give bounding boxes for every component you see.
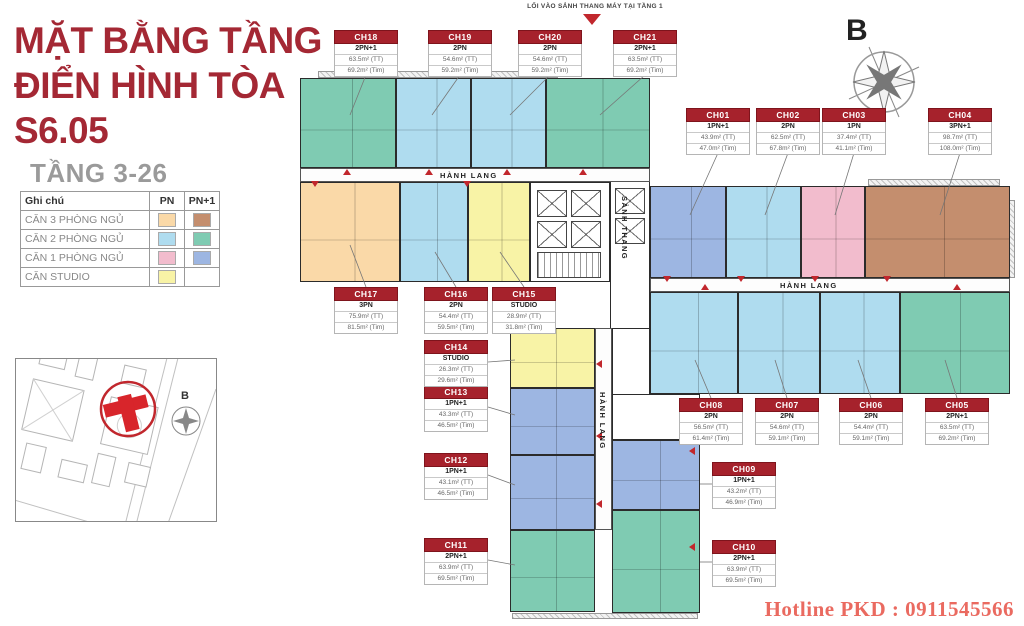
unit-area-tt: 63.5m² (TT): [614, 55, 676, 65]
legend-swatch-cell: [185, 230, 220, 249]
legend-swatch-cell: [150, 249, 185, 268]
balcony-strip: [512, 613, 698, 619]
unit-CH17: [300, 182, 400, 282]
entry-marker-icon: [463, 181, 471, 187]
unit-label-CH06: CH062PN54.4m² (TT)59.1m² (Tim): [839, 398, 903, 445]
color-swatch-pn3p: [193, 213, 211, 227]
unit-area-tt: 54.6m² (TT): [429, 55, 491, 65]
stair-lobby-label: SẢNH THANG: [620, 196, 629, 260]
unit-area-tim: 69.2m² (Tim): [926, 433, 988, 444]
color-swatch-studio: [158, 270, 176, 284]
unit-code: CH11: [424, 538, 488, 552]
unit-area-tim: 59.2m² (Tim): [429, 65, 491, 76]
unit-label-CH05: CH052PN+163.5m² (TT)69.2m² (Tim): [925, 398, 989, 445]
entrance-note: LỐI VÀO SẢNH THANG MÁY TẠI TẦNG 1: [500, 3, 690, 10]
unit-code: CH02: [756, 108, 820, 122]
core-block: [612, 328, 650, 396]
legend-swatch-cell: [185, 211, 220, 230]
unit-type: STUDIO: [493, 301, 555, 312]
entry-marker-icon: [503, 169, 511, 175]
unit-code: CH12: [424, 453, 488, 467]
unit-CH08: [650, 292, 738, 394]
entry-marker-icon: [425, 169, 433, 175]
unit-label-CH08: CH082PN56.5m² (TT)61.4m² (Tim): [679, 398, 743, 445]
unit-label-CH13: CH131PN+143.3m² (TT)46.5m² (Tim): [424, 385, 488, 432]
unit-code: CH20: [518, 30, 582, 44]
floor-range-subtitle: TẦNG 3-26: [30, 158, 167, 189]
hallway-label-vertical: HÀNH LANG: [598, 392, 607, 450]
elevator-shaft-icon: [571, 190, 601, 217]
legend-row-label: CĂN 1 PHÒNG NGỦ: [21, 249, 150, 268]
unit-label-CH02: CH022PN62.5m² (TT)67.8m² (Tim): [756, 108, 820, 155]
legend-row-label: CĂN 3 PHÒNG NGỦ: [21, 211, 150, 230]
balcony-strip: [868, 179, 1000, 186]
hallway-label-right: HÀNH LANG: [780, 281, 838, 290]
unit-CH13: [510, 388, 595, 455]
unit-label-CH20: CH202PN54.6m² (TT)59.2m² (Tim): [518, 30, 582, 77]
unit-label-CH10: CH102PN+163.9m² (TT)69.5m² (Tim): [712, 540, 776, 587]
site-map-inset: B: [15, 358, 217, 522]
entry-marker-icon: [343, 169, 351, 175]
unit-area-tim: 47.0m² (Tim): [687, 143, 749, 154]
unit-area-tt: 75.9m² (TT): [335, 312, 397, 322]
unit-type: 2PN+1: [425, 552, 487, 563]
entry-marker-icon: [579, 169, 587, 175]
unit-area-tt: 43.9m² (TT): [687, 133, 749, 143]
unit-code: CH21: [613, 30, 677, 44]
legend-row-label: CĂN STUDIO: [21, 268, 150, 287]
unit-label-CH21: CH212PN+163.5m² (TT)69.2m² (Tim): [613, 30, 677, 77]
unit-label-CH14: CH14STUDIO26.3m² (TT)29.6m² (Tim): [424, 340, 488, 387]
entry-marker-icon: [663, 276, 671, 282]
unit-area-tt: 28.9m² (TT): [493, 312, 555, 322]
unit-area-tt: 43.2m² (TT): [713, 487, 775, 497]
unit-type: 1PN+1: [425, 467, 487, 478]
unit-label-CH16: CH162PN54.4m² (TT)59.5m² (Tim): [424, 287, 488, 334]
unit-label-CH19: CH192PN54.6m² (TT)59.2m² (Tim): [428, 30, 492, 77]
legend-table: Ghi chú PN PN+1 CĂN 3 PHÒNG NGỦCĂN 2 PHÒ…: [20, 191, 220, 287]
unit-type: 1PN: [823, 122, 885, 133]
legend-row: CĂN 2 PHÒNG NGỦ: [21, 230, 220, 249]
unit-code: CH16: [424, 287, 488, 301]
color-swatch-pn2: [158, 232, 176, 246]
unit-area-tt: 54.4m² (TT): [840, 423, 902, 433]
unit-type: 3PN: [335, 301, 397, 312]
legend-swatch-cell: [150, 268, 185, 287]
unit-code: CH08: [679, 398, 743, 412]
unit-code: CH18: [334, 30, 398, 44]
unit-area-tt: 43.3m² (TT): [425, 410, 487, 420]
unit-label-CH04: CH043PN+198.7m² (TT)108.0m² (Tim): [928, 108, 992, 155]
unit-CH02: [726, 186, 801, 278]
unit-area-tim: 69.2m² (Tim): [335, 65, 397, 76]
unit-code: CH06: [839, 398, 903, 412]
unit-code: CH03: [822, 108, 886, 122]
unit-area-tt: 62.5m² (TT): [757, 133, 819, 143]
entry-marker-icon: [737, 276, 745, 282]
unit-code: CH15: [492, 287, 556, 301]
unit-area-tim: 41.1m² (Tim): [823, 143, 885, 154]
unit-type: 2PN+1: [713, 554, 775, 565]
unit-CH16: [400, 182, 468, 282]
unit-area-tt: 54.6m² (TT): [756, 423, 818, 433]
unit-code: CH05: [925, 398, 989, 412]
legend-header-label: Ghi chú: [21, 192, 150, 211]
unit-type: 2PN+1: [926, 412, 988, 423]
unit-type: 2PN: [757, 122, 819, 133]
entrance-arrow-icon: [583, 14, 601, 25]
unit-CH07: [738, 292, 820, 394]
unit-label-CH15: CH15STUDIO28.9m² (TT)31.8m² (Tim): [492, 287, 556, 334]
unit-type: 1PN+1: [425, 399, 487, 410]
unit-area-tim: 69.5m² (Tim): [713, 575, 775, 586]
unit-code: CH19: [428, 30, 492, 44]
unit-code: CH09: [712, 462, 776, 476]
unit-type: 3PN+1: [929, 122, 991, 133]
unit-label-CH12: CH121PN+143.1m² (TT)46.5m² (Tim): [424, 453, 488, 500]
legend-swatch-cell: [185, 249, 220, 268]
unit-code: CH14: [424, 340, 488, 354]
elevator-shaft-icon: [537, 221, 567, 248]
unit-area-tim: 61.4m² (Tim): [680, 433, 742, 444]
unit-CH09: [612, 440, 700, 510]
unit-CH03: [801, 186, 865, 278]
unit-CH10: [612, 510, 700, 613]
unit-area-tim: 46.5m² (Tim): [425, 420, 487, 431]
entry-marker-icon: [689, 447, 695, 455]
legend-row-label: CĂN 2 PHÒNG NGỦ: [21, 230, 150, 249]
unit-area-tt: 26.3m² (TT): [425, 365, 487, 375]
unit-type: 2PN: [425, 301, 487, 312]
hallway-label-top: HÀNH LANG: [440, 171, 498, 180]
elevator-shaft-icon: [537, 190, 567, 217]
legend-header-pn: PN: [150, 192, 185, 211]
unit-area-tim: 67.8m² (Tim): [757, 143, 819, 154]
unit-area-tt: 63.5m² (TT): [335, 55, 397, 65]
unit-area-tt: 63.9m² (TT): [425, 563, 487, 573]
entry-marker-icon: [596, 360, 602, 368]
unit-area-tim: 69.2m² (Tim): [614, 65, 676, 76]
unit-area-tim: 59.1m² (Tim): [756, 433, 818, 444]
unit-area-tim: 46.9m² (Tim): [713, 497, 775, 508]
unit-CH21: [546, 78, 650, 168]
page-title: MẶT BẰNG TẦNG ĐIỂN HÌNH TÒA S6.05: [14, 18, 322, 153]
unit-area-tim: 46.5m² (Tim): [425, 488, 487, 499]
unit-type: 2PN+1: [614, 44, 676, 55]
unit-area-tim: 59.2m² (Tim): [519, 65, 581, 76]
unit-CH11: [510, 530, 595, 612]
unit-label-CH17: CH173PN75.9m² (TT)81.5m² (Tim): [334, 287, 398, 334]
compass-north-label: B: [846, 14, 868, 48]
unit-type: 2PN: [519, 44, 581, 55]
unit-area-tim: 69.5m² (Tim): [425, 573, 487, 584]
legend-swatch-cell: [150, 230, 185, 249]
entry-marker-icon: [953, 284, 961, 290]
unit-area-tim: 29.6m² (Tim): [425, 375, 487, 386]
unit-CH12: [510, 455, 595, 530]
color-swatch-pn1p: [193, 251, 211, 265]
unit-area-tt: 54.6m² (TT): [519, 55, 581, 65]
unit-code: CH10: [712, 540, 776, 554]
unit-area-tt: 43.1m² (TT): [425, 478, 487, 488]
unit-CH06: [820, 292, 900, 394]
entry-marker-icon: [311, 181, 319, 187]
color-swatch-pn1: [158, 251, 176, 265]
entry-marker-icon: [689, 543, 695, 551]
unit-area-tim: 59.5m² (Tim): [425, 322, 487, 333]
unit-CH01: [650, 186, 726, 278]
legend-row: CĂN 1 PHÒNG NGỦ: [21, 249, 220, 268]
unit-CH15: [468, 182, 530, 282]
elevator-shaft-icon: [571, 221, 601, 248]
unit-code: CH01: [686, 108, 750, 122]
svg-text:B: B: [181, 390, 189, 402]
entry-marker-icon: [701, 284, 709, 290]
entry-marker-icon: [596, 500, 602, 508]
unit-label-CH18: CH182PN+163.5m² (TT)69.2m² (Tim): [334, 30, 398, 77]
unit-area-tt: 56.5m² (TT): [680, 423, 742, 433]
entry-marker-icon: [883, 276, 891, 282]
unit-area-tt: 37.4m² (TT): [823, 133, 885, 143]
legend-swatch-cell: [185, 268, 220, 287]
title-line-1: MẶT BẰNG TẦNG: [14, 18, 322, 63]
unit-type: STUDIO: [425, 354, 487, 365]
unit-CH20: [471, 78, 546, 168]
unit-area-tim: 31.8m² (Tim): [493, 322, 555, 333]
floorplan-page: MẶT BẰNG TẦNG ĐIỂN HÌNH TÒA S6.05 TẦNG 3…: [0, 0, 1024, 626]
unit-code: CH07: [755, 398, 819, 412]
legend-row: CĂN STUDIO: [21, 268, 220, 287]
unit-CH18: [300, 78, 396, 168]
unit-area-tt: 63.9m² (TT): [713, 565, 775, 575]
unit-code: CH17: [334, 287, 398, 301]
unit-type: 1PN+1: [713, 476, 775, 487]
unit-label-CH03: CH031PN37.4m² (TT)41.1m² (Tim): [822, 108, 886, 155]
unit-CH05: [900, 292, 1010, 394]
unit-area-tt: 98.7m² (TT): [929, 133, 991, 143]
legend-header-pn1: PN+1: [185, 192, 220, 211]
legend-swatch-cell: [150, 211, 185, 230]
unit-CH19: [396, 78, 471, 168]
unit-code: CH04: [928, 108, 992, 122]
unit-label-CH01: CH011PN+143.9m² (TT)47.0m² (Tim): [686, 108, 750, 155]
title-line-2: ĐIỂN HÌNH TÒA: [14, 63, 322, 108]
unit-label-CH11: CH112PN+163.9m² (TT)69.5m² (Tim): [424, 538, 488, 585]
unit-area-tim: 108.0m² (Tim): [929, 143, 991, 154]
unit-label-CH07: CH072PN54.6m² (TT)59.1m² (Tim): [755, 398, 819, 445]
unit-type: 2PN: [680, 412, 742, 423]
unit-code: CH13: [424, 385, 488, 399]
title-line-3: S6.05: [14, 108, 322, 153]
unit-label-CH09: CH091PN+143.2m² (TT)46.9m² (Tim): [712, 462, 776, 509]
unit-area-tim: 81.5m² (Tim): [335, 322, 397, 333]
unit-area-tt: 54.4m² (TT): [425, 312, 487, 322]
unit-CH14: [510, 328, 595, 388]
inset-compass-icon: B: [172, 390, 200, 435]
unit-area-tim: 59.1m² (Tim): [840, 433, 902, 444]
stairwell: [537, 252, 601, 278]
legend-row: CĂN 3 PHÒNG NGỦ: [21, 211, 220, 230]
unit-type: 2PN: [840, 412, 902, 423]
color-swatch-pn2p: [193, 232, 211, 246]
unit-type: 2PN: [429, 44, 491, 55]
unit-CH04: [865, 186, 1010, 278]
unit-type: 1PN+1: [687, 122, 749, 133]
color-swatch-pn3: [158, 213, 176, 227]
hotline: Hotline PKD : 0911545566: [765, 597, 1014, 622]
unit-area-tt: 63.5m² (TT): [926, 423, 988, 433]
unit-type: 2PN+1: [335, 44, 397, 55]
unit-type: 2PN: [756, 412, 818, 423]
